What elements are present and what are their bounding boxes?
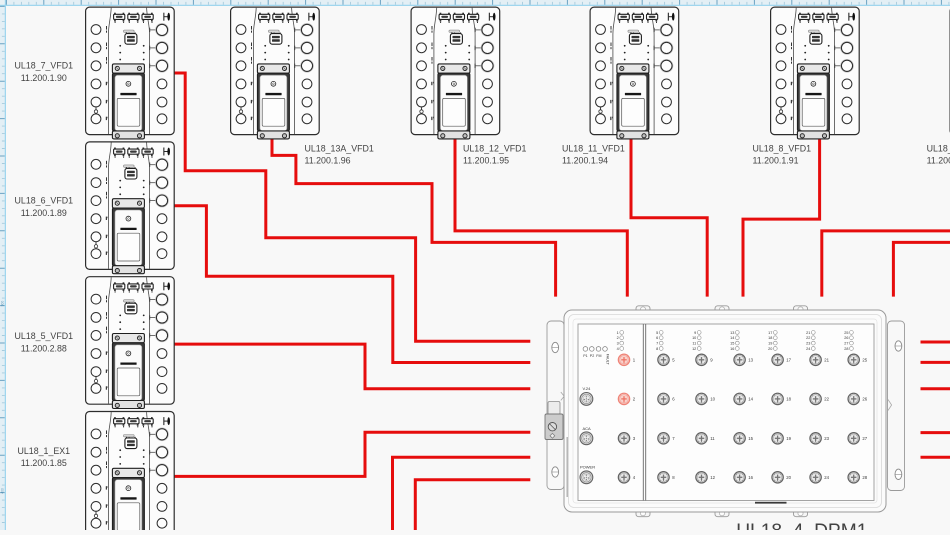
svg-text:18: 18 [786,397,791,402]
svg-text:26: 26 [844,336,848,340]
svg-text:16: 16 [748,475,753,480]
svg-text:25: 25 [844,331,848,335]
svg-text:11.200.2.88: 11.200.2.88 [21,344,67,354]
svg-text:15: 15 [730,342,734,346]
svg-text:11.200.1.91: 11.200.1.91 [753,156,799,166]
svg-text:27: 27 [862,436,867,441]
svg-text:22: 22 [824,397,829,402]
svg-text:28: 28 [844,347,848,351]
svg-text:11.200.1.85: 11.200.1.85 [21,458,67,468]
svg-text:UL18_9_VFD1: UL18_9_VFD1 [927,144,950,154]
svg-text:24: 24 [806,347,810,351]
svg-text:ACA: ACA [583,426,592,431]
svg-text:P1: P1 [583,354,587,358]
svg-text:P2: P2 [590,354,594,358]
svg-text:12: 12 [692,347,696,351]
svg-text:UL18_7_VFD1: UL18_7_VFD1 [15,61,74,71]
svg-text:24: 24 [824,475,829,480]
svg-text:22: 22 [806,336,810,340]
svg-text:14: 14 [730,336,734,340]
svg-text:11.200.1.94: 11.200.1.94 [562,156,608,166]
svg-text:18: 18 [768,336,772,340]
svg-text:11.200.1.92: 11.200.1.92 [927,156,950,166]
svg-text:FAULT: FAULT [606,354,610,366]
svg-text:10: 10 [710,397,715,402]
svg-text:UL18_5_VFD1: UL18_5_VFD1 [15,331,74,341]
svg-text:16: 16 [730,347,734,351]
svg-text:9: 9 [694,331,696,335]
svg-text:12: 12 [710,475,715,480]
svg-text:19: 19 [768,342,772,346]
svg-text:FM: FM [596,354,601,358]
svg-text:6: 6 [656,336,658,340]
svg-text:17: 17 [786,358,791,363]
svg-text:7: 7 [656,342,658,346]
svg-text:2: 2 [617,336,619,340]
svg-text:UL18_13A_VFD1: UL18_13A_VFD1 [305,144,374,154]
svg-text:23: 23 [806,342,810,346]
svg-text:19: 19 [786,436,791,441]
svg-text:11: 11 [710,436,715,441]
svg-text:11: 11 [692,342,696,346]
svg-text:11.200.1.96: 11.200.1.96 [305,156,351,166]
svg-text:UL18_1_EX1: UL18_1_EX1 [17,446,70,456]
svg-text:400: 400 [0,488,4,494]
svg-text:13: 13 [748,358,753,363]
svg-text:UL18_12_VFD1: UL18_12_VFD1 [463,144,527,154]
svg-text:20: 20 [786,475,791,480]
svg-text:23: 23 [824,436,829,441]
svg-text:28: 28 [862,475,867,480]
svg-text:21: 21 [806,331,810,335]
svg-text:26: 26 [862,397,867,402]
svg-text:UL18_11_VFD1: UL18_11_VFD1 [562,144,625,154]
svg-text:13: 13 [730,331,734,335]
svg-text:15: 15 [748,436,753,441]
svg-text:300: 300 [0,301,4,307]
svg-text:UL18_6_VFD1: UL18_6_VFD1 [15,195,74,205]
svg-text:11.200.1.95: 11.200.1.95 [463,156,509,166]
svg-text:11.200.1.89: 11.200.1.89 [21,208,67,218]
svg-text:8: 8 [656,347,658,351]
svg-text:25: 25 [862,358,867,363]
svg-text:UL18_8_VFD1: UL18_8_VFD1 [753,144,812,154]
svg-text:5: 5 [656,331,658,335]
svg-text:V.24: V.24 [583,386,592,391]
svg-text:1: 1 [617,331,619,335]
svg-text:10: 10 [692,336,696,340]
svg-text:11.200.1.90: 11.200.1.90 [21,73,67,83]
svg-text:20: 20 [768,347,772,351]
svg-text:17: 17 [768,331,772,335]
svg-text:21: 21 [824,358,829,363]
svg-text:27: 27 [844,342,848,346]
svg-text:4: 4 [617,347,619,351]
svg-text:UL18_4_DPM1: UL18_4_DPM1 [736,521,867,530]
svg-text:POWER: POWER [580,465,595,470]
svg-text:14: 14 [748,397,753,402]
svg-text:3: 3 [617,342,619,346]
